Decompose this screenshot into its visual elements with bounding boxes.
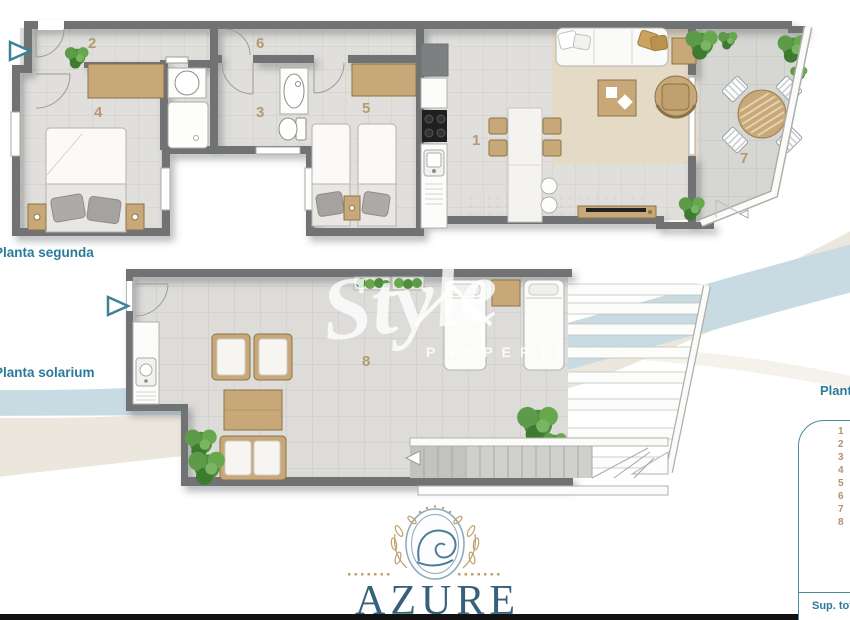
bathtub [284, 74, 304, 108]
wardrobe [88, 64, 164, 98]
legend-item-3: 3 [838, 453, 844, 463]
watermark-script: Style [317, 248, 502, 357]
floor-label-segunda: Planta segunda [0, 245, 94, 260]
room-number-2: 2 [88, 35, 96, 52]
outdoor-armchair [254, 334, 292, 380]
room-number-5: 5 [362, 100, 370, 117]
legend-divider [799, 592, 850, 593]
legend-item-2: 2 [838, 440, 844, 450]
entry-arrow-icon [108, 297, 128, 315]
double-bed [46, 128, 126, 232]
outdoor-bench [220, 436, 286, 480]
legend-item-8: 8 [838, 518, 844, 528]
floorplan-page: Planta segunda Planta solarium 2 6 4 3 5… [0, 0, 850, 620]
legend-item-6: 6 [838, 492, 844, 502]
bottom-edge-bar [0, 614, 798, 620]
kitchen-units [421, 44, 448, 228]
coffee-table [598, 80, 636, 116]
fridge [421, 78, 447, 108]
tv-bench [578, 206, 656, 218]
legend-title: Planta [820, 383, 850, 398]
toilet [279, 118, 306, 140]
dining-chair [489, 140, 507, 156]
room-number-4: 4 [94, 104, 102, 121]
brand-logo [348, 505, 500, 579]
kitchen-sink [424, 150, 444, 176]
room-number-7: 7 [740, 150, 748, 167]
dining-chair [543, 140, 561, 156]
legend-footer: Sup. total [812, 600, 850, 612]
washbasin [175, 71, 199, 95]
legend-item-1: 1 [838, 427, 844, 437]
stove [422, 110, 447, 142]
stool [541, 197, 557, 213]
room-number-3: 3 [256, 104, 264, 121]
bathroom-3-fixtures [279, 68, 308, 140]
legend-item-4: 4 [838, 466, 844, 476]
dining-chair [489, 118, 507, 134]
watermark-caps: PROPERTIES [426, 344, 606, 360]
shower-room-fixtures [168, 68, 208, 148]
room-number-6: 6 [256, 35, 264, 52]
floor-label-solarium: Planta solarium [0, 365, 95, 380]
armchair [655, 76, 697, 118]
legend-item-5: 5 [838, 479, 844, 489]
entry-opening [38, 20, 64, 30]
stool [541, 178, 557, 194]
solarium-kitchenette [133, 322, 159, 404]
shower-tray [168, 102, 208, 148]
single-bed [358, 124, 396, 226]
sofa [556, 28, 668, 66]
wardrobe [352, 64, 416, 96]
outdoor-armchair [212, 334, 250, 380]
legend-item-7: 7 [838, 505, 844, 515]
room-number-1: 1 [472, 132, 480, 149]
sink [140, 364, 152, 376]
dining-chair [543, 118, 561, 134]
